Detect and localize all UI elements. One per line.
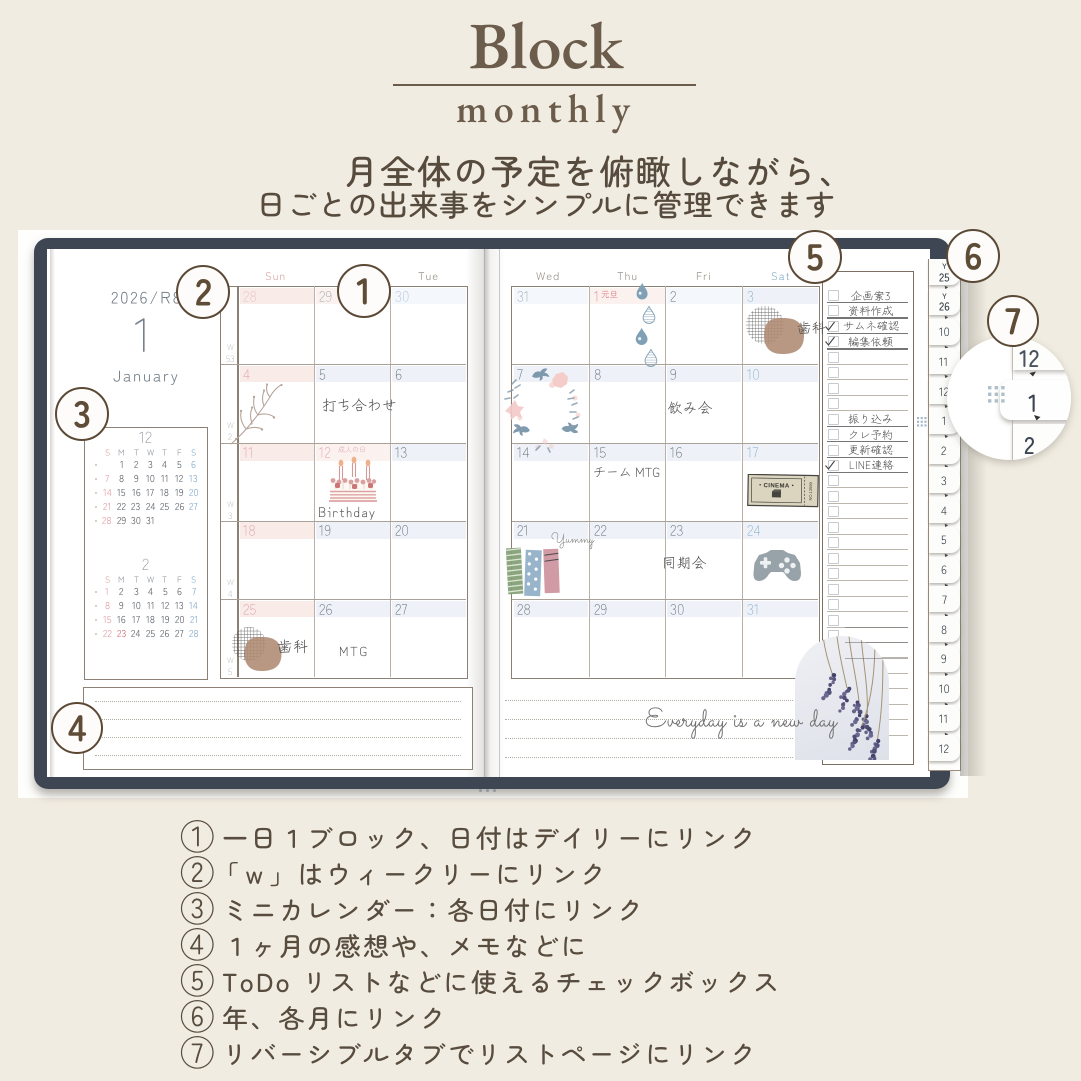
svg-text:・CINEMA・: ・CINEMA・	[757, 483, 796, 490]
svg-text:NO.13599: NO.13599	[808, 481, 813, 500]
